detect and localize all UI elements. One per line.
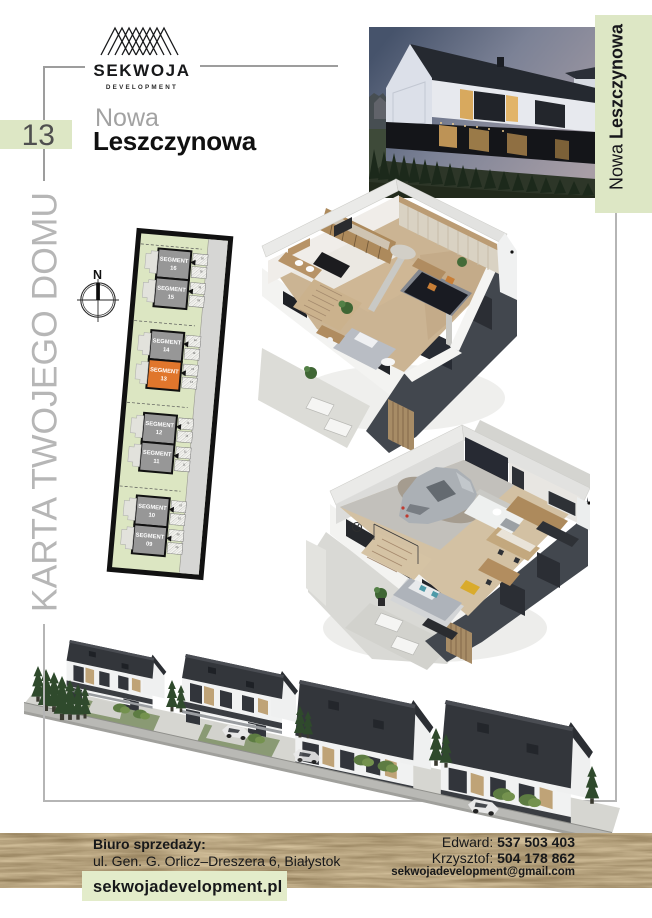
svg-text:N: N xyxy=(93,268,102,282)
svg-text:12: 12 xyxy=(155,430,162,437)
svg-text:10: 10 xyxy=(148,513,155,520)
